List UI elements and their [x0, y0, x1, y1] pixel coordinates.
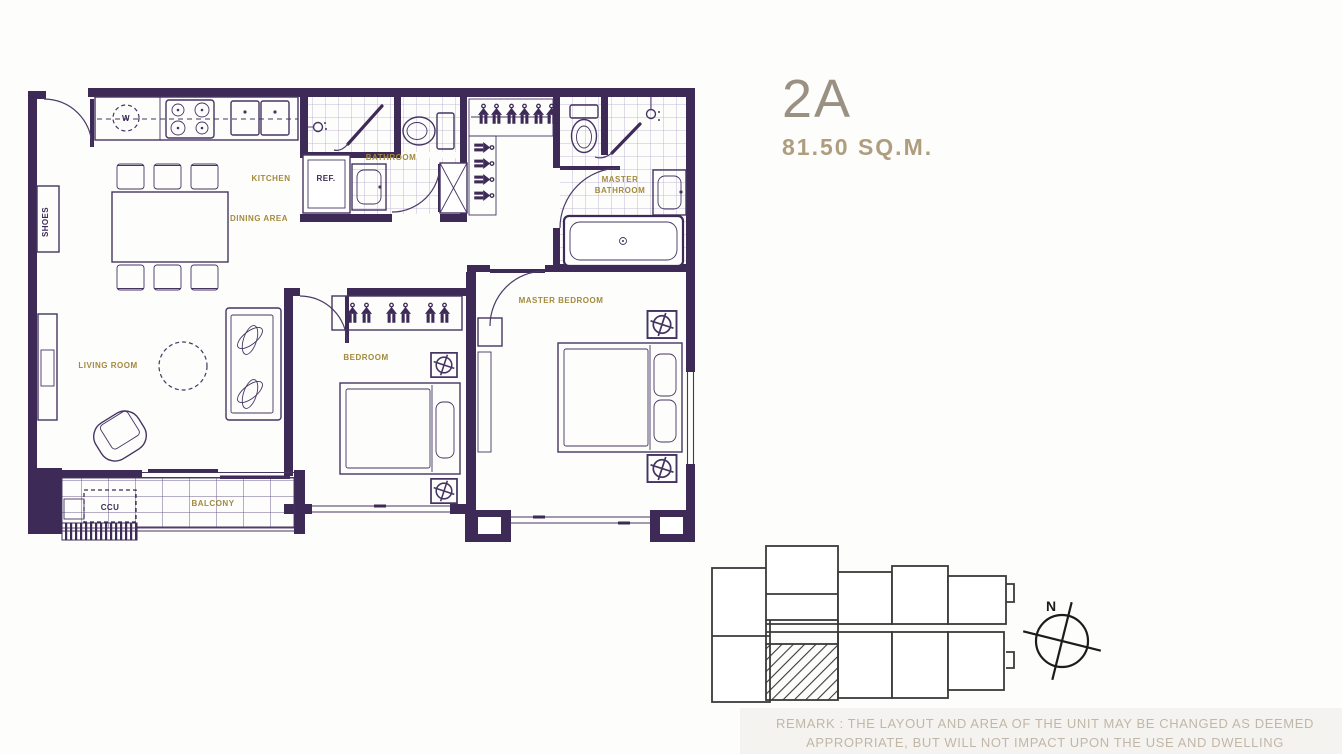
- key-plan: [712, 546, 1014, 702]
- master-bedroom-furniture: [478, 309, 682, 483]
- unit-name: 2A: [782, 72, 933, 126]
- kitchen-sink: [231, 101, 289, 135]
- label-bedroom: BEDROOM: [343, 353, 388, 362]
- key-plan-highlighted-unit: [766, 644, 838, 700]
- label-bathroom: BATHROOM: [366, 153, 417, 162]
- nightstand-lamp: [647, 309, 677, 483]
- page: { "title": { "unit_name": "2A", "unit_ar…: [0, 0, 1342, 754]
- floor-plan: W: [0, 0, 1342, 754]
- label-master-bedroom: MASTER BEDROOM: [519, 296, 604, 305]
- label-living-room: LIVING ROOM: [78, 361, 137, 370]
- label-shoes: SHOES: [41, 207, 50, 237]
- label-master-bathroom-2: BATHROOM: [595, 186, 646, 195]
- compass-north-label: N: [1046, 598, 1056, 614]
- closet: [469, 99, 557, 215]
- compass: N: [1014, 593, 1111, 690]
- label-ref: REF.: [317, 174, 336, 183]
- bathtub: [564, 216, 683, 266]
- master-bed: [558, 343, 682, 452]
- label-kitchen: KITCHEN: [251, 174, 290, 183]
- label-balcony: BALCONY: [191, 499, 234, 508]
- title-block: 2A 81.50 SQ.M.: [782, 72, 933, 161]
- washer-label: W: [122, 114, 130, 123]
- tv-cabinet: [38, 314, 57, 420]
- bedroom-furniture: [332, 296, 462, 505]
- washing-machine: W: [113, 105, 139, 131]
- remark-line-2: APPROPRIATE, BUT WILL NOT IMPACT UPON TH…: [748, 733, 1342, 752]
- louver-grille: [62, 523, 137, 540]
- tv-console: [478, 318, 502, 452]
- kitchen-counter: W: [95, 97, 298, 140]
- armchair: [88, 405, 153, 467]
- remark: REMARK : THE LAYOUT AND AREA OF THE UNIT…: [748, 714, 1342, 752]
- label-master-bathroom-1: MASTER: [602, 175, 639, 184]
- living-room-furniture: [38, 308, 281, 467]
- round-rug: [159, 342, 207, 390]
- duct-shaft: [440, 163, 467, 213]
- unit-area: 81.50 SQ.M.: [782, 134, 933, 161]
- dining-set: [112, 164, 228, 290]
- wardrobe: [332, 296, 462, 330]
- sofa: [226, 308, 281, 420]
- remark-line-1: REMARK : THE LAYOUT AND AREA OF THE UNIT…: [748, 714, 1342, 733]
- label-ccu: CCU: [101, 503, 120, 512]
- refrigerator: [303, 155, 350, 213]
- label-dining-area: DINING AREA: [230, 214, 288, 223]
- bed: [340, 383, 460, 474]
